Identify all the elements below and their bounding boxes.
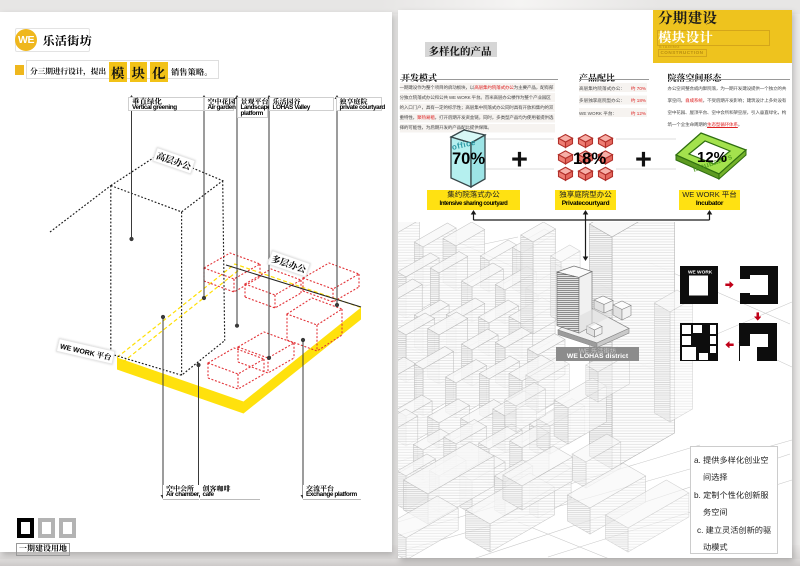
- svg-text:WE WORK: WE WORK: [688, 270, 713, 276]
